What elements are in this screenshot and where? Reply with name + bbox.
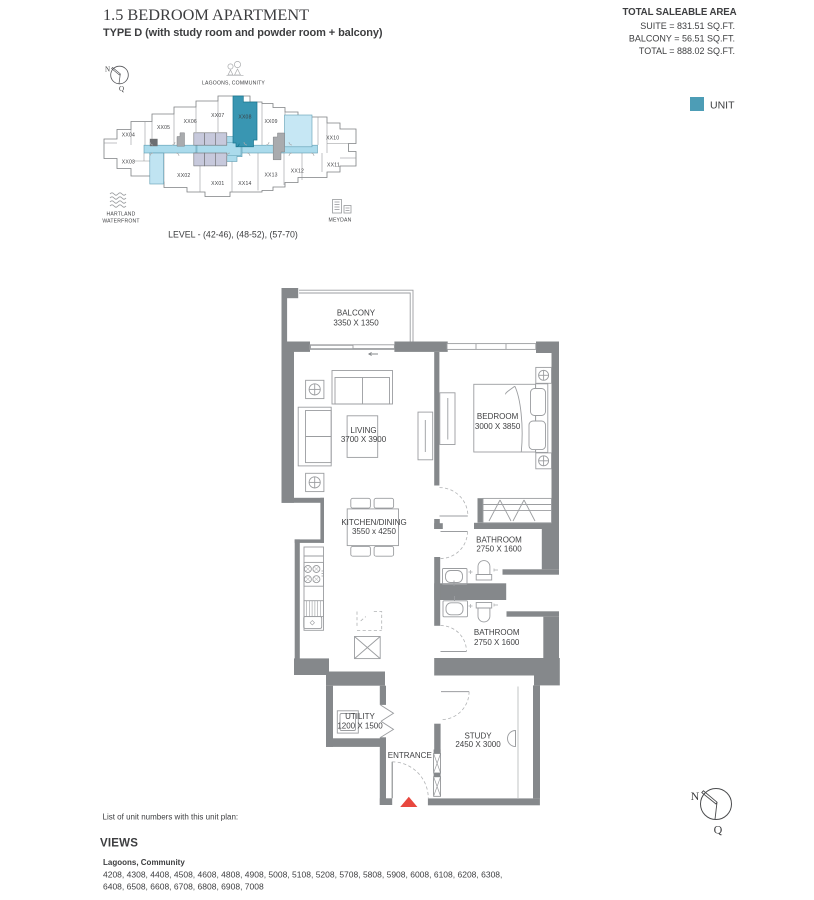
- svg-text:LIVING: LIVING: [350, 426, 376, 435]
- svg-text:N: N: [105, 66, 110, 74]
- svg-text:XX04: XX04: [122, 133, 135, 139]
- svg-text:3350 X 1350: 3350 X 1350: [333, 319, 379, 328]
- svg-text:2750 X 1600: 2750 X 1600: [474, 638, 520, 647]
- svg-text:XX05: XX05: [157, 125, 170, 131]
- svg-text:XX02: XX02: [177, 173, 190, 179]
- svg-text:3000 X 3850: 3000 X 3850: [475, 422, 521, 431]
- svg-text:XX12: XX12: [291, 168, 304, 174]
- svg-text:TOTAL SALEABLE AREA: TOTAL SALEABLE AREA: [623, 7, 737, 18]
- svg-text:Q: Q: [714, 823, 723, 837]
- svg-text:Lagoons, Community: Lagoons, Community: [103, 858, 185, 867]
- svg-text:XX10: XX10: [326, 136, 339, 142]
- svg-text:1.5 BEDROOM APARTMENT: 1.5 BEDROOM APARTMENT: [103, 5, 309, 24]
- svg-text:4208, 4308, 4408, 4508, 4608,: 4208, 4308, 4408, 4508, 4608, 4808, 4908…: [103, 870, 502, 880]
- svg-text:3550 x 4250: 3550 x 4250: [352, 527, 397, 536]
- svg-text:XX06: XX06: [184, 119, 197, 125]
- svg-text:XX08: XX08: [238, 115, 251, 121]
- svg-text:KITCHEN/DINING: KITCHEN/DINING: [341, 518, 406, 527]
- svg-text:3700 X 3900: 3700 X 3900: [341, 435, 387, 444]
- svg-text:LAGOONS, COMMUNITY: LAGOONS, COMMUNITY: [202, 81, 265, 87]
- svg-text:2450 X 3000: 2450 X 3000: [455, 740, 501, 749]
- svg-text:TOTAL = 888.02 SQ.FT.: TOTAL = 888.02 SQ.FT.: [639, 46, 735, 56]
- svg-text:VIEWS: VIEWS: [100, 838, 138, 850]
- svg-text:UTILITY: UTILITY: [345, 712, 375, 721]
- svg-text:BALCONY = 56.51 SQ.FT.: BALCONY = 56.51 SQ.FT.: [629, 34, 735, 44]
- svg-text:XX13: XX13: [264, 172, 277, 178]
- svg-text:Q: Q: [119, 85, 124, 93]
- svg-text:BATHROOM: BATHROOM: [474, 628, 520, 637]
- svg-text:UNIT: UNIT: [710, 100, 735, 112]
- svg-text:XX14: XX14: [238, 181, 251, 187]
- svg-text:BEDROOM: BEDROOM: [477, 412, 519, 421]
- svg-text:1200 X 1500: 1200 X 1500: [337, 722, 383, 731]
- svg-text:WATERFRONT: WATERFRONT: [102, 219, 139, 225]
- svg-text:XX11: XX11: [327, 162, 340, 168]
- svg-text:N: N: [691, 789, 700, 803]
- svg-text:LEVEL - (42-46), (48-52), (57-: LEVEL - (42-46), (48-52), (57-70): [168, 229, 298, 239]
- svg-text:List of unit numbers with this: List of unit numbers with this unit plan…: [103, 813, 239, 822]
- svg-text:XX01: XX01: [211, 181, 224, 187]
- svg-text:SUITE = 831.51 SQ.FT.: SUITE = 831.51 SQ.FT.: [640, 21, 735, 31]
- svg-text:TYPE D (with study room and po: TYPE D (with study room and powder room …: [103, 27, 383, 39]
- svg-text:HARTLAND: HARTLAND: [107, 212, 136, 218]
- svg-text:XX03: XX03: [122, 159, 135, 165]
- svg-text:2750 X 1600: 2750 X 1600: [476, 545, 522, 554]
- svg-text:ENTRANCE: ENTRANCE: [388, 751, 432, 760]
- svg-text:BATHROOM: BATHROOM: [476, 535, 522, 544]
- svg-text:XX07: XX07: [211, 113, 224, 119]
- svg-text:MEYDAN: MEYDAN: [329, 218, 352, 224]
- svg-text:BALCONY: BALCONY: [337, 309, 376, 318]
- svg-text:6408, 6508, 6608, 6708, 6808,: 6408, 6508, 6608, 6708, 6808, 6908, 7008: [103, 882, 264, 892]
- svg-text:XX09: XX09: [264, 119, 277, 125]
